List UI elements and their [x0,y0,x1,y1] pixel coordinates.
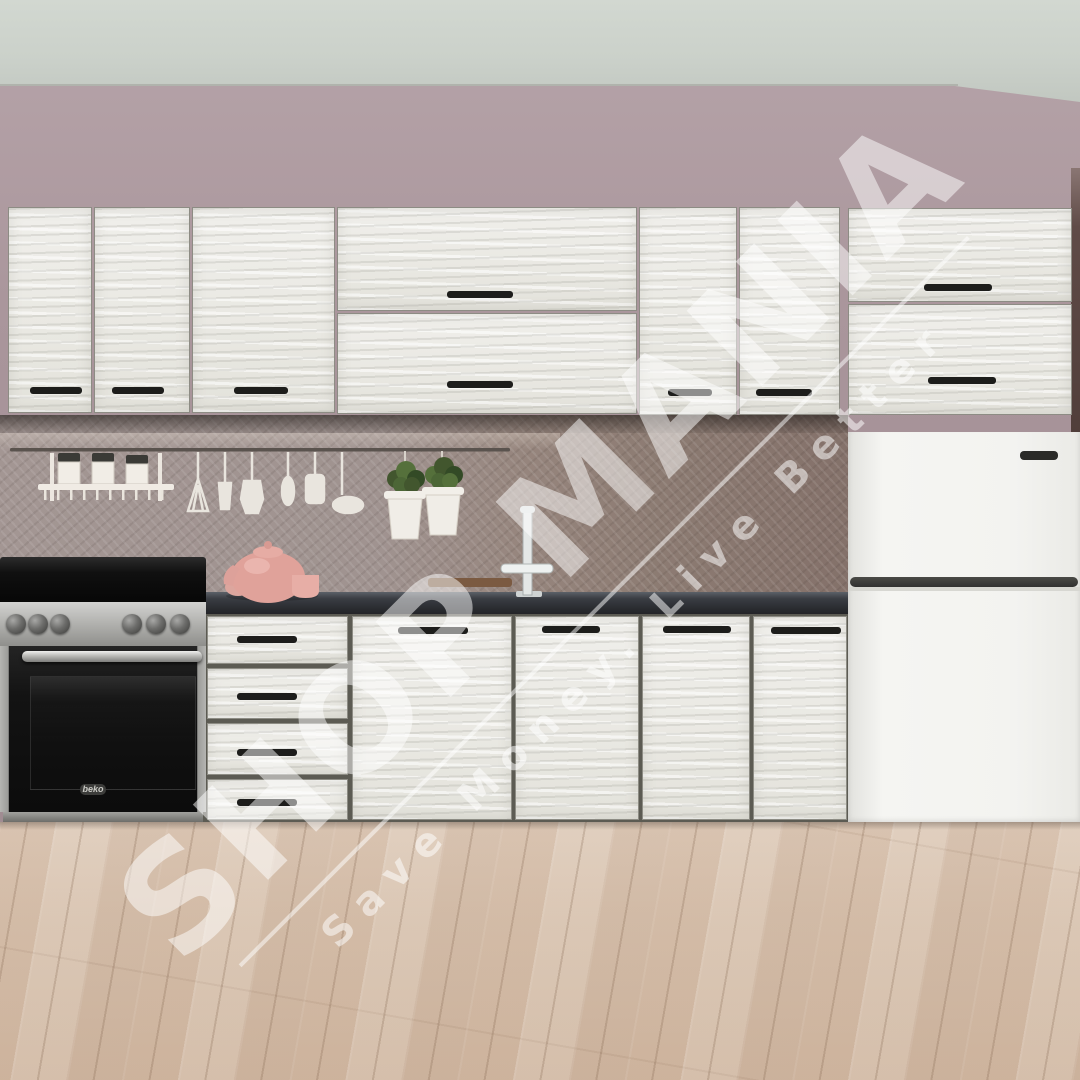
door-handle [771,627,841,634]
wood-floor [0,822,1080,1080]
door-handle [924,284,992,291]
door-handle [234,387,288,394]
stove-knob [6,614,26,634]
stove-knob [28,614,48,634]
cutting-board [428,578,512,587]
base-cabinet-door-4 [753,616,847,820]
door-handle [756,389,812,396]
stove-knob [50,614,70,634]
stove-knob [170,614,190,634]
oven-window [30,676,196,790]
floor-baseboard-shadow [0,822,1080,830]
upper-cabinet-door-2 [94,207,190,413]
fridge [848,432,1080,825]
base-cabinet-door-2 [515,616,639,820]
plant-pots [384,451,464,539]
stove-control-panel [0,602,206,646]
hanging-utensils [188,452,363,513]
oven-handle [22,651,202,662]
base-cabinet-door-3 [642,616,750,820]
oven-brand-logo: beko [80,784,106,795]
drawer-handle [237,799,297,806]
stove-kick-plate [3,812,203,822]
ceiling [0,0,1080,104]
upper-cabinet-flap-bottom [337,313,637,414]
fridge-door-handle-bar [850,577,1078,587]
spice-shelf [38,453,174,501]
upper-cabinet-door-5 [739,207,840,415]
fridge-door-gap [848,587,1080,591]
drawer-handle [237,749,297,756]
door-handle [668,389,712,396]
door-handle [447,291,513,298]
upper-cabinet-door-4 [639,207,737,415]
door-handle [447,381,513,388]
stove-knob [146,614,166,634]
door-handle [112,387,164,394]
freezer-door-handle [1020,451,1058,460]
kitchen-product-photo: beko SHOP MANIA Save Money. Live Better [0,0,1080,1080]
door-handle [663,626,731,633]
stove: beko [0,557,206,822]
utensil-rail [10,448,510,452]
door-handle [398,627,468,634]
drawer-handle [237,693,297,700]
upper-cabinet-door-1 [8,207,92,413]
drawer-handle [237,636,297,643]
cooktop [0,557,206,602]
ceiling-wall-edge [0,84,958,86]
door-handle [928,377,996,384]
stove-knob [122,614,142,634]
base-cabinet-door-1 [352,616,512,820]
upper-cabinet-door-3 [192,207,335,413]
upper-right-flap-bottom [848,304,1072,415]
door-handle [542,626,600,633]
teapot-and-cups [224,541,319,603]
door-handle [30,387,82,394]
